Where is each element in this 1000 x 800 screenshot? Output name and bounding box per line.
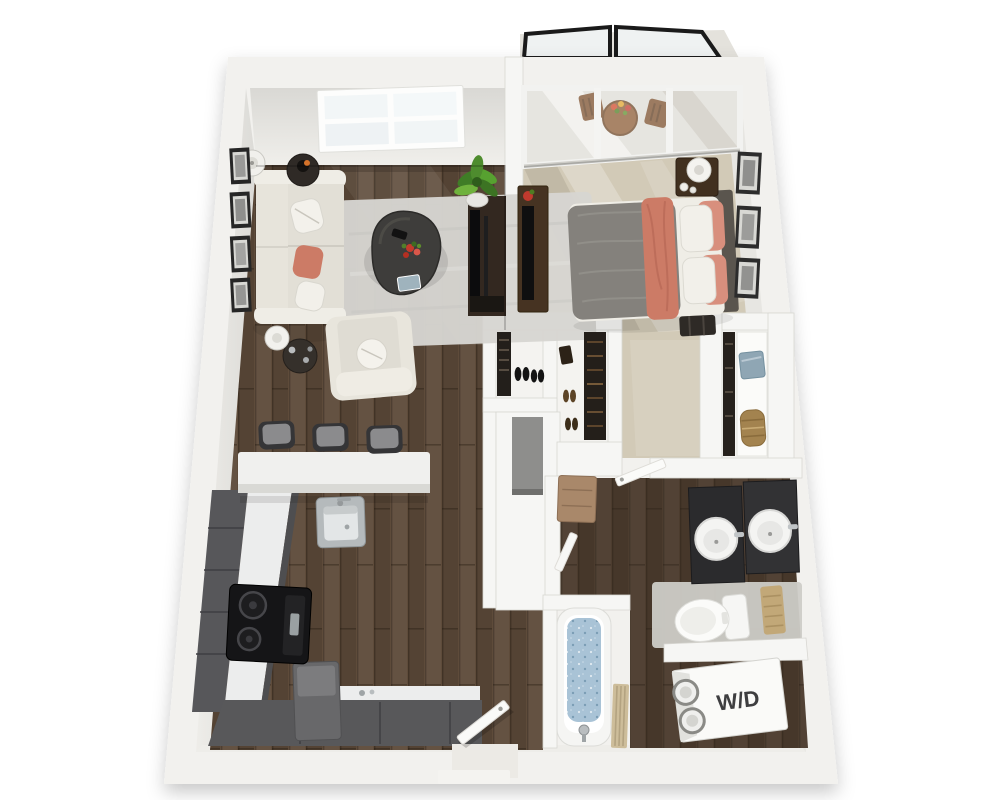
armchair bbox=[325, 310, 418, 401]
bathtub bbox=[557, 608, 611, 746]
wall-panel-gray bbox=[512, 417, 543, 493]
tv-screen bbox=[470, 210, 480, 302]
balcony bbox=[520, 27, 740, 60]
pillow-white-2 bbox=[682, 257, 716, 305]
tub-faucet bbox=[579, 725, 589, 735]
bedroom-dresser bbox=[518, 186, 548, 312]
nightstand bbox=[676, 158, 718, 196]
kitchen-cabinets-bottom bbox=[208, 700, 482, 746]
bed-bench bbox=[679, 315, 716, 337]
bath-towel bbox=[760, 585, 786, 635]
cooktop-stove bbox=[226, 584, 312, 664]
faucet-right bbox=[788, 524, 798, 529]
wall-frame bbox=[229, 147, 251, 184]
soundbar bbox=[484, 216, 488, 296]
kitchen-sink bbox=[316, 496, 366, 548]
wall-frame bbox=[230, 236, 252, 273]
tv-console bbox=[468, 196, 506, 316]
wicker-basket bbox=[740, 409, 766, 447]
wall-frame bbox=[735, 206, 761, 249]
wall-frame bbox=[230, 191, 252, 228]
floor-plan-svg: W/D bbox=[0, 0, 1000, 800]
entry-step bbox=[438, 770, 510, 784]
bar-stool bbox=[258, 420, 295, 450]
wall-panel-gray-face bbox=[512, 489, 543, 495]
bar-stool bbox=[312, 423, 349, 452]
bed bbox=[567, 190, 740, 342]
wall-tub-left bbox=[543, 598, 557, 748]
washer-dryer: W/D bbox=[671, 658, 788, 743]
wall-frame bbox=[734, 258, 760, 299]
bedroom-tv bbox=[522, 206, 534, 300]
wd-label: W/D bbox=[715, 686, 760, 716]
storage-box-blue bbox=[739, 351, 766, 379]
faucet-left bbox=[734, 532, 744, 537]
balcony-railing-left-panel bbox=[524, 27, 610, 58]
wall-frame bbox=[736, 151, 762, 194]
shower-curtain bbox=[611, 684, 629, 749]
wall-frame bbox=[230, 278, 252, 313]
wall-closet2-south bbox=[557, 442, 622, 476]
bathroom-cabinet bbox=[557, 475, 597, 522]
wall-linen-right bbox=[768, 313, 794, 460]
wall-bathroom-top bbox=[650, 458, 802, 478]
wall-closet2-east bbox=[608, 330, 622, 458]
living-window bbox=[317, 85, 465, 152]
pillow-white-1 bbox=[679, 205, 713, 253]
kitchen-counter-bottom bbox=[330, 686, 480, 700]
kitchen-cart bbox=[293, 661, 342, 741]
floor-plan-image: W/D bbox=[0, 0, 1000, 800]
wall-closet1-south bbox=[483, 398, 557, 412]
table-book bbox=[397, 275, 421, 292]
linen-closet bbox=[723, 332, 767, 456]
wall-closet-left bbox=[483, 330, 496, 608]
sofa bbox=[253, 170, 357, 342]
bar-stool bbox=[366, 425, 403, 454]
coral-throw bbox=[641, 197, 679, 321]
